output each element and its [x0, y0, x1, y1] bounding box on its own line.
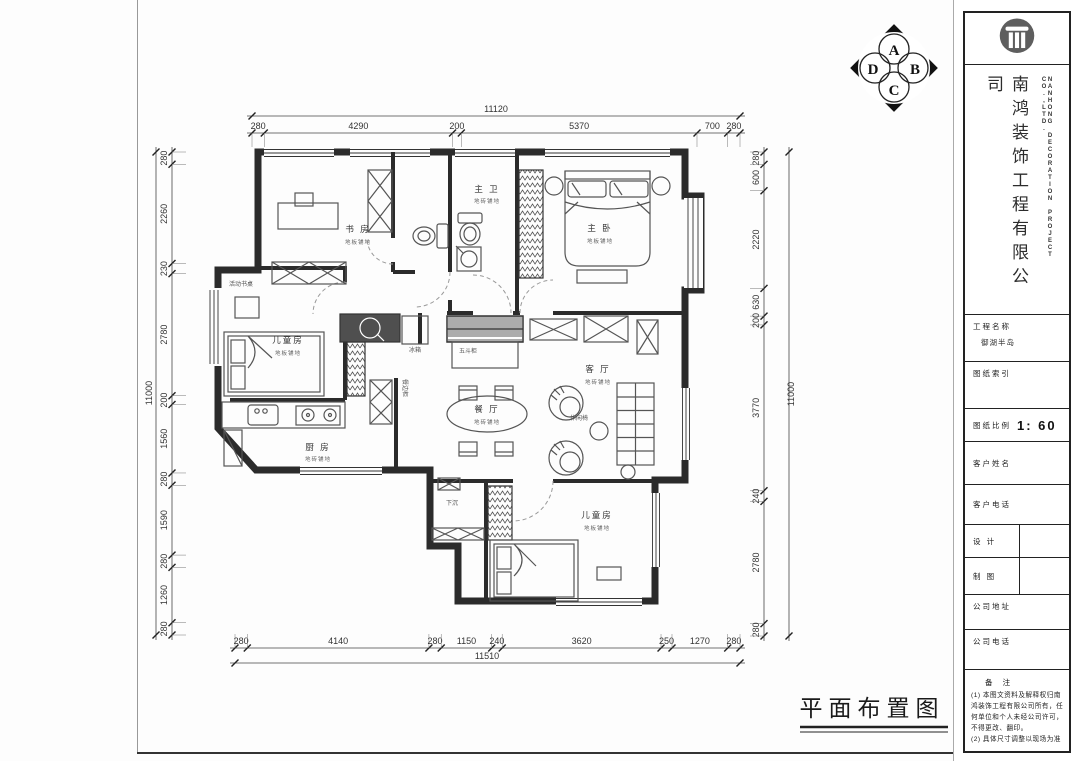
label-side-cabinet: 餐边柜	[401, 379, 409, 397]
floor-note: 地砖铺地	[474, 418, 500, 426]
dim-value: 2260	[159, 204, 169, 224]
dim-value: 2780	[751, 553, 761, 573]
guest-wc-door	[415, 272, 450, 307]
dim-value: 11120	[484, 104, 508, 114]
floor-note: 地砖铺地	[474, 197, 500, 205]
label-sunken: 下沉	[446, 499, 458, 507]
column-logo-icon	[994, 16, 1040, 62]
dim-value: 230	[159, 261, 169, 276]
label-fridge: 冰箱	[409, 346, 421, 354]
field-value: 御湖半岛	[981, 337, 1063, 348]
master-toilet	[458, 213, 482, 245]
dim-value: 11000	[786, 382, 796, 406]
field-client-name: 客户姓名	[965, 442, 1069, 485]
master-bath-door	[473, 275, 511, 313]
field-company-address: 公司地址	[965, 595, 1069, 630]
dim-value: 280	[726, 636, 741, 646]
dim-value: 2780	[159, 325, 169, 345]
company-name-cn: 南鸿装饰工程有限公司	[981, 75, 1031, 314]
master-sink	[456, 246, 481, 271]
sunken-window	[432, 478, 484, 540]
field-client-phone: 客户电话	[965, 485, 1069, 525]
study-desk	[278, 193, 338, 229]
field-label: 工程名称	[973, 321, 1063, 332]
dim-value: 11510	[475, 651, 499, 661]
cell-divider	[1019, 525, 1020, 557]
room-label-kitchen: 厨 房	[305, 442, 330, 452]
field-label: 制 图	[973, 571, 996, 582]
field-label: 公司地址	[973, 601, 1063, 612]
room-label-study: 书 房	[345, 224, 370, 234]
room-label-master-bath: 主 卫	[474, 184, 499, 194]
dim-value: 280	[751, 622, 761, 637]
compass-letter-a: A	[889, 43, 900, 59]
chest-cabinet	[452, 342, 518, 368]
dim-value: 600	[751, 170, 761, 185]
dim-value: 4140	[328, 636, 348, 646]
dim-value: 630	[751, 295, 761, 310]
floor-note: 地板铺地	[587, 237, 613, 245]
dim-value: 11000	[144, 381, 154, 405]
floor-note: 地砖铺地	[305, 455, 331, 463]
side-cabinet	[370, 380, 392, 424]
dim-value: 280	[159, 621, 169, 636]
dim-value: 200	[159, 393, 169, 408]
dimension-lines: 2804290200537070028011120280414028011502…	[144, 104, 796, 667]
child1-door	[313, 282, 345, 314]
compass-letter-c: C	[889, 83, 900, 99]
floor-note: 地板铺地	[584, 524, 610, 532]
dim-value: 3770	[751, 398, 761, 418]
wash-counter	[340, 314, 400, 342]
floor-note: 地板铺地	[275, 349, 301, 357]
orientation-symbol: A B C D	[850, 24, 938, 112]
dim-value: 280	[159, 472, 169, 487]
field-drawing-index: 图纸索引	[965, 362, 1069, 409]
company-name-en: NANHONG DECORATION PROJECT CO.,LTD.	[1041, 77, 1053, 314]
scale-value: 1: 60	[1017, 418, 1057, 433]
label-chest: 五斗柜	[459, 347, 477, 355]
room-label-master-bedroom: 主 卧	[587, 223, 612, 233]
dim-value: 280	[234, 636, 249, 646]
study-closet	[368, 170, 392, 232]
dim-value: 1260	[159, 585, 169, 605]
hall-closet	[347, 342, 365, 396]
company-logo-row	[965, 13, 1069, 65]
side-table	[590, 422, 608, 440]
title-block-panel: 南鸿装饰工程有限公司 NANHONG DECORATION PROJECT CO…	[954, 0, 1080, 761]
field-label: 客户姓名	[973, 458, 1011, 469]
dim-value: 4290	[348, 121, 368, 131]
field-label: 公司电话	[973, 636, 1063, 647]
drawing-sheet: 书 房 主 卫 主 卧 儿童房 厨 房 餐 厅 客 厅 儿童房 地板铺地 地砖铺…	[0, 0, 1080, 761]
dim-value: 700	[705, 121, 720, 131]
dim-value: 200	[751, 313, 761, 328]
dim-value: 280	[251, 121, 266, 131]
dim-value: 280	[159, 151, 169, 166]
sofa	[617, 383, 654, 479]
compass-letter-d: D	[868, 62, 879, 78]
bed-bench	[577, 270, 627, 283]
field-drafter: 制 图	[965, 558, 1069, 595]
field-project-name: 工程名称 御湖半岛	[965, 315, 1069, 362]
dim-value: 1270	[690, 636, 710, 646]
remark-note-2: (2) 具体尺寸调整以现场为准	[971, 735, 1064, 746]
label-leisure-chair: 休闲椅	[570, 414, 588, 422]
child2-bed	[490, 540, 578, 601]
dim-value: 2220	[751, 230, 761, 250]
room-label-child1: 儿童房	[272, 335, 304, 345]
master-bed	[565, 171, 650, 266]
nightstand-left	[545, 177, 563, 195]
windows	[210, 147, 703, 606]
nightstand-right	[652, 177, 670, 195]
field-label: 客户电话	[973, 499, 1011, 510]
exterior-walls	[218, 152, 701, 601]
caption-text: 平面布置图	[800, 696, 945, 721]
child2-door	[513, 481, 553, 521]
room-label-child2: 儿童房	[581, 510, 613, 520]
child2-bench	[597, 567, 621, 580]
floor-note: 地砖铺地	[585, 378, 611, 386]
child1-top-cabinet	[272, 262, 346, 284]
field-company-phone: 公司电话	[965, 630, 1069, 670]
floor-note: 地板铺地	[345, 238, 371, 246]
dim-value: 1590	[159, 510, 169, 530]
guest-toilet	[413, 224, 448, 248]
compass-letter-b: B	[910, 62, 920, 78]
dim-value: 5370	[569, 121, 589, 131]
field-label: 图纸比例	[973, 420, 1011, 431]
company-name-block: 南鸿装饰工程有限公司 NANHONG DECORATION PROJECT CO…	[965, 65, 1069, 315]
dim-value: 1560	[159, 429, 169, 449]
room-label-dining: 餐 厅	[474, 404, 499, 414]
dim-value: 3620	[572, 636, 592, 646]
drawing-caption: 平面布置图	[800, 696, 949, 732]
dim-value: 280	[751, 151, 761, 166]
leisure-chairs	[549, 386, 583, 475]
master-bedroom-door	[520, 280, 553, 313]
field-label: 设 计	[973, 536, 996, 547]
remarks-title: 备 注	[985, 677, 1064, 688]
entry-bench	[447, 316, 523, 342]
dim-value: 200	[449, 121, 464, 131]
fridge	[402, 316, 428, 344]
remarks-block: 备 注 (1) 本图文资料及解释权归南鸿装饰工程有限公司所有，任何单位和个人未经…	[965, 670, 1069, 751]
field-drawing-scale: 图纸比例 1: 60	[965, 409, 1069, 442]
dim-value: 1150	[457, 636, 476, 646]
dim-value: 280	[428, 636, 443, 646]
dim-value: 280	[159, 554, 169, 569]
field-label: 图纸索引	[973, 368, 1063, 379]
label-movable-desk: 活动书桌	[229, 280, 253, 288]
child1-desk	[235, 297, 259, 318]
cell-divider	[1019, 558, 1020, 594]
floor-plan-drawing: 书 房 主 卫 主 卧 儿童房 厨 房 餐 厅 客 厅 儿童房 地板铺地 地砖铺…	[0, 0, 955, 761]
dim-value: 280	[726, 121, 741, 131]
master-wardrobe	[519, 170, 543, 278]
child2-wardrobe	[488, 486, 512, 540]
storage-cabinets	[530, 316, 658, 354]
field-designer: 设 计	[965, 525, 1069, 558]
remark-note-1: (1) 本图文资料及解释权归南鸿装饰工程有限公司所有，任何单位和个人未经公司许可…	[971, 691, 1064, 735]
room-label-living: 客 厅	[585, 364, 610, 374]
